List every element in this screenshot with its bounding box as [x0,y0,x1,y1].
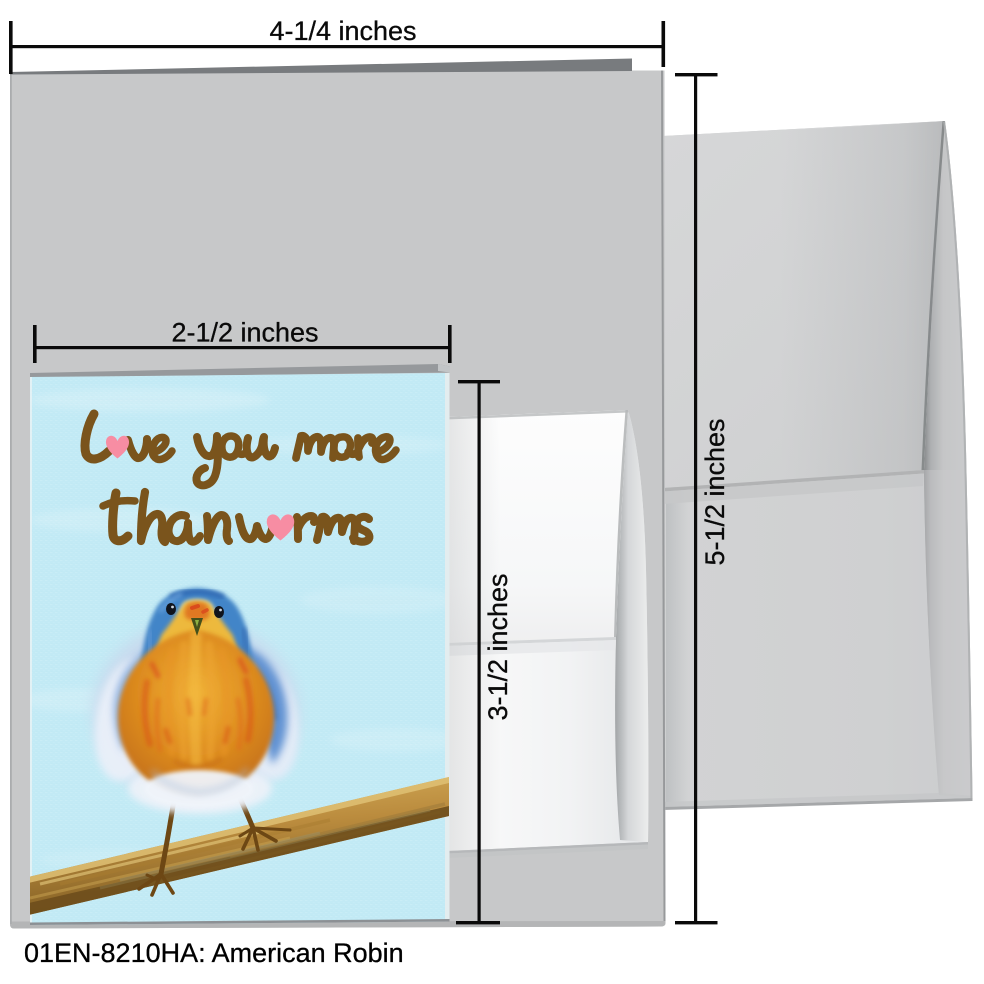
svg-text:2-1/2 inches: 2-1/2 inches [171,318,318,348]
svg-text:3-1/2 inches: 3-1/2 inches [483,573,513,720]
svg-text:5-1/2 inches: 5-1/2 inches [700,418,730,565]
svg-text:4-1/4 inches: 4-1/4 inches [269,16,416,46]
svg-text:01EN-8210HA: American Robin: 01EN-8210HA: American Robin [24,938,404,968]
